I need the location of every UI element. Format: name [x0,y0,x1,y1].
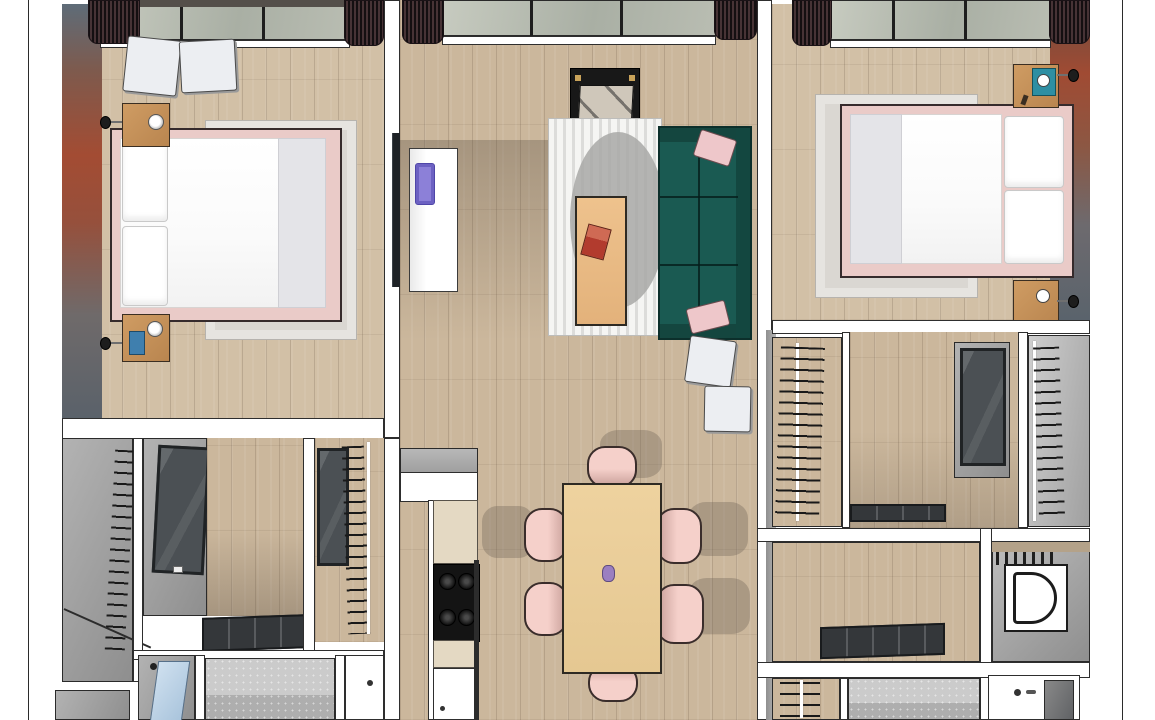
bed-pillow [122,142,168,222]
wall-sconce-icon [100,337,111,350]
clothes-rail [367,442,370,634]
sofa-seam [698,142,700,324]
cup [1037,74,1050,87]
sliding-door-on-floor [202,614,308,652]
wall-band [62,418,384,440]
sofa [658,126,752,340]
clothes-hangers [1033,347,1065,516]
dining-table [562,483,662,674]
red-book [580,223,611,260]
wall-sconce-icon [1068,69,1079,82]
shower-glass-door [150,661,191,720]
burner [458,573,475,590]
tv-stand-hinge [629,75,635,81]
dining-chair [656,584,704,644]
pouf [684,335,737,388]
kitchen-counter-run [400,446,480,720]
window-sill [442,36,716,45]
tv-stand-hinge [575,75,581,81]
dressing-room-floor [772,542,980,662]
wall-band-vertical [384,0,400,438]
wall-band [133,438,143,682]
wall-band [757,528,1090,542]
teal-tray [1032,68,1056,96]
bathroom-right-tile-floor [848,678,980,720]
vase [602,565,615,582]
toilet-room [992,542,1090,662]
wood-shelf [992,542,1090,552]
room-bedroom-left [62,0,384,440]
wall-mounted-tv [392,133,400,287]
faucet [1014,689,1021,696]
right-wing [757,0,1090,720]
glass-sliding-doors [960,348,1006,466]
counter-corner-top [400,448,478,474]
room-bedroom-right [772,0,1090,334]
bed-pillow [1004,190,1064,264]
curtain-right [714,0,757,40]
wardrobe-with-glass-door [143,438,207,616]
refrigerator [409,148,458,292]
blue-book [129,331,145,355]
sofa-backrest [736,128,750,338]
wall-band-vertical [384,438,400,720]
dark-cabinet [1044,680,1074,720]
window-mullion [620,0,623,36]
curtain-left [792,0,832,46]
left-margin-rule-line [28,0,29,720]
hall-shadow [207,528,303,616]
white-closet [1028,335,1090,527]
closet-right-interior [315,438,384,642]
clothes-hangers [342,446,371,635]
burner [439,609,456,626]
basin-counter [988,675,1080,720]
bedroom-left-accent-wall [62,4,102,424]
door-handle [173,566,183,573]
burner [458,609,475,626]
floor-door-track [850,504,946,522]
wall-band [1018,332,1028,528]
bedroom-right-bed [840,104,1074,278]
pouf [122,35,182,96]
toilet [1004,564,1068,632]
cabinet-bottom-left [55,690,130,720]
toilet-seat [1013,572,1057,624]
bedroom-right-window [830,0,1051,40]
wardrobe-gray [62,438,133,682]
wall-band [335,655,345,720]
bathroom-left-tile-floor [205,658,335,720]
sliding-wardrobe-unit [954,342,1010,478]
wall-sconce-icon [1068,295,1079,308]
appliance-handle [440,706,445,711]
curtain-right [1049,0,1090,44]
bed-pillow [1004,116,1064,188]
white-fixture [345,655,384,720]
sliding-door-on-floor [820,623,945,659]
window-mullion [530,0,533,36]
worktop-cream [433,500,478,564]
appliance-front [433,668,478,720]
bedroom-left-bed [110,128,342,322]
window-sill [830,40,1051,48]
clothes-rail [800,680,803,718]
shower-enclosure [138,655,195,720]
pouf [704,386,752,433]
dining-chair [587,446,637,488]
curtain-right [344,0,384,46]
window-mullion [892,0,895,40]
pouf [179,39,238,94]
room-living-room [400,0,757,720]
window-mullion [964,0,967,40]
clothes-hangers [105,450,135,651]
living-window [442,0,716,36]
gas-hob [433,564,480,642]
burner [439,573,456,590]
fridge-display [415,163,435,205]
curtain-left [402,0,444,44]
counter-corner-front [400,472,478,502]
wall-band [195,655,205,720]
wall-sconce-icon [100,116,111,129]
nightstand-bottom [122,314,170,362]
wall-band [842,332,850,528]
small-item [1020,94,1028,105]
wall-band [840,678,848,720]
glass-door [152,445,211,576]
dining-chair [656,508,702,564]
faucet-handle [1026,690,1036,694]
bed-pillow [122,226,168,306]
closet-room-floor [850,332,1018,528]
bed-folded-blanket [850,114,902,264]
nightstand-top [1013,64,1059,108]
walk-in-closet-left [772,337,842,527]
worktop-cream [433,640,478,668]
closet-bottom [772,678,840,720]
right-margin-rule-line [1122,0,1123,720]
nightstand-top [122,103,170,147]
clothes-hangers [775,346,825,517]
counter-side-panel [474,560,479,720]
bed-folded-blanket [278,138,326,308]
shower-hinge [150,663,157,670]
drain [367,680,373,686]
area-closet-hall-left [62,438,384,720]
cup [1036,289,1050,303]
hallway-floor [207,438,303,616]
floor-plan-render [0,0,1155,720]
table-lamp [147,321,163,337]
wall-band [303,438,315,660]
coffee-table [575,196,627,326]
table-lamp [148,114,164,130]
